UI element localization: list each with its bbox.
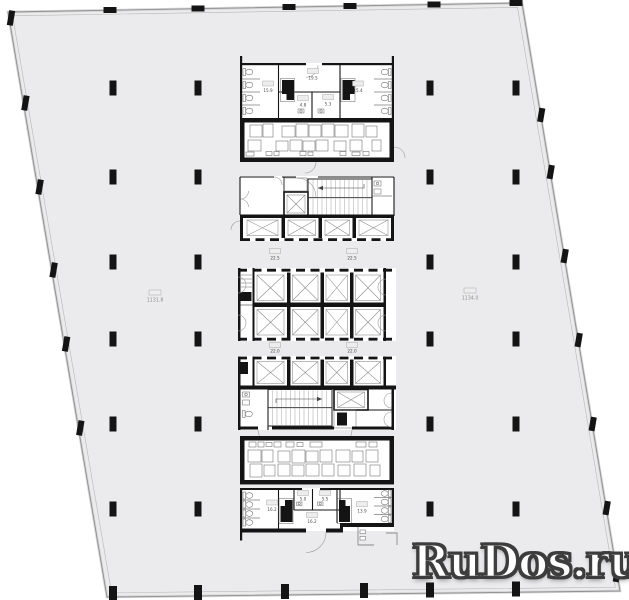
label-lobby-top: 19.5 [308, 76, 318, 81]
shaft-bottom-left [279, 499, 293, 524]
label-wc-left-bottom: 16.2 [267, 507, 277, 512]
label-landing-upper-left: 22.5 [270, 256, 280, 261]
label-landing-lower-right: 22.0 [347, 349, 357, 354]
label-room-53: 5.3 [325, 102, 332, 107]
core-elevator-bank [238, 268, 396, 341]
room-tag [149, 290, 161, 295]
core-equipment-room-lower [240, 436, 394, 485]
shaft-top-left [281, 79, 295, 102]
label-room-55: 5.5 [322, 497, 329, 502]
label-room-48: 4.8 [300, 103, 307, 108]
rudos-watermark: RuDos.ru [412, 539, 629, 584]
label-wc-left-top: 15.9 [263, 88, 273, 93]
label-landing-upper-right: 22.5 [347, 256, 357, 261]
area-value-left: 1131.8 [147, 298, 164, 304]
label-corridor-bottom: 16.2 [307, 519, 317, 524]
stairs-upper [308, 179, 372, 216]
label-wc-right-top: 15.4 [353, 88, 363, 93]
core-upper-stair-block [231, 176, 394, 241]
shaft-bottom-right [338, 499, 352, 524]
label-landing-lower-left: 22.0 [270, 349, 280, 354]
floor-plan-page: 1131.8 1134.0 [0, 0, 629, 600]
room-tag [464, 288, 476, 293]
core-top-wc-block: 15.9 19.5 4.8 5.3 15.4 [240, 56, 394, 122]
area-value-right: 1134.0 [462, 296, 479, 302]
label-room-50: 5.0 [300, 497, 307, 502]
floor-plan-drawing: 1131.8 1134.0 [0, 0, 629, 600]
label-wc-right-bottom: 13.9 [357, 509, 367, 514]
